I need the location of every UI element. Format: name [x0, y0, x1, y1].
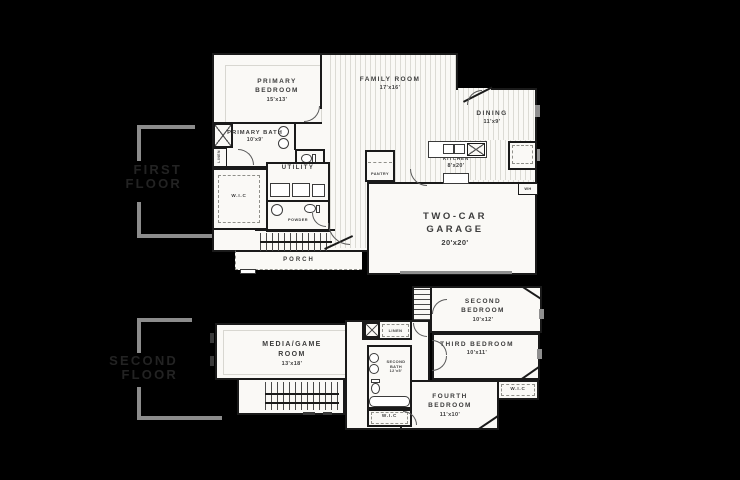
family-room-name: FAMILY ROOM: [358, 75, 422, 84]
pantry-text: PANTRY: [365, 171, 395, 176]
second-bedroom-name: SECOND BEDROOM: [446, 297, 520, 316]
wic-left-label: W.I.C: [367, 413, 412, 419]
powder-text: POWDER: [266, 217, 330, 222]
range: [443, 173, 469, 184]
water-heater-text: WH: [518, 186, 538, 191]
second-floor-label: SECOND FLOOR: [76, 354, 178, 383]
washer-dryer: [292, 183, 310, 197]
sink: [369, 364, 379, 374]
bathtub: [369, 396, 410, 407]
kitchen-dim: 8'x20': [426, 162, 486, 170]
sink: [369, 353, 379, 363]
dining-label: DINING 11'x9': [462, 109, 522, 127]
closet-dashed: [368, 162, 392, 163]
primary-bath-dim: 10'x9': [227, 137, 283, 145]
water-heater-label: WH: [518, 186, 538, 191]
window-mark: [323, 412, 332, 415]
powder-label: POWDER: [266, 217, 330, 222]
wic-right-text: W.I.C: [497, 386, 539, 392]
wall: [294, 122, 296, 150]
fourth-bedroom-label: FOURTH BEDROOM 11'x10': [413, 392, 487, 419]
third-bedroom-dim: 10'x11': [440, 349, 514, 357]
second-bath-name: SECOND BATH: [382, 359, 410, 369]
window-mark: [210, 333, 214, 343]
toilet-tank: [316, 205, 320, 213]
kitchen-label: KITCHEN 8'x20': [426, 156, 486, 171]
toilet: [304, 204, 316, 213]
window-mark: [210, 356, 214, 366]
third-bedroom-label: THIRD BEDROOM 10'x11': [440, 340, 514, 358]
fourth-bedroom-dim: 11'x10': [413, 411, 487, 419]
closet-dashed: [512, 145, 533, 164]
stairs: [414, 288, 430, 320]
wic-label: W.I.C: [216, 193, 262, 199]
window-mark: [535, 105, 540, 117]
wall: [456, 53, 458, 90]
linen-label: LINEN: [382, 328, 409, 333]
shower: [364, 322, 380, 338]
garage-dim: 20'x20': [403, 237, 507, 248]
toilet: [371, 383, 380, 394]
media-game-label: MEDIA/GAME ROOM 13'x18': [247, 340, 337, 369]
primary-bath-label: PRIMARY BATH 10'x9': [227, 129, 283, 145]
family-room-dim: 17'x16': [358, 84, 422, 92]
stair-rail: [260, 241, 332, 243]
second-floor-label-line2: FLOOR: [76, 368, 178, 382]
porch-step: [240, 269, 256, 274]
utility-text: UTILITY: [266, 164, 330, 173]
garage-name: TWO-CAR GARAGE: [403, 211, 507, 237]
stair-rail: [265, 393, 339, 395]
wic-right-label: W.I.C: [497, 386, 539, 392]
linen-text: LINEN: [382, 328, 409, 333]
pantry-closet: [365, 150, 395, 182]
porch-text: PORCH: [268, 256, 330, 265]
fourth-bedroom-name: FOURTH BEDROOM: [413, 392, 487, 411]
wall: [320, 53, 322, 109]
floorplan-image: FIRST FLOOR SECOND FLOOR WH: [0, 0, 740, 480]
second-bath-label: SECOND BATH 12'x5': [382, 359, 410, 375]
washer-dryer: [270, 183, 290, 197]
second-floor-bracket-top: [137, 318, 192, 353]
first-floor-bracket-top: [137, 125, 195, 161]
dining-dim: 11'x9': [462, 118, 522, 126]
utility-label: UTILITY: [266, 164, 330, 173]
second-floor-plan: LINEN W.I.C SECOND BATH 12'x5': [205, 283, 550, 460]
dining-name: DINING: [462, 109, 522, 118]
window-mark: [303, 412, 315, 415]
stair-rail: [265, 402, 339, 404]
first-floor-label: FIRST FLOOR: [80, 163, 182, 192]
wic-left-text: W.I.C: [367, 413, 412, 419]
wall: [255, 229, 335, 231]
sink: [271, 204, 283, 216]
garage-label: TWO-CAR GARAGE 20'x20': [403, 211, 507, 248]
utility-sink: [312, 184, 325, 197]
wic-text: W.I.C: [216, 193, 262, 199]
island-sink: [454, 144, 465, 154]
third-bedroom-name: THIRD BEDROOM: [440, 340, 514, 349]
window-mark: [537, 349, 542, 359]
primary-bedroom-name: PRIMARY BEDROOM: [240, 77, 314, 96]
pantry-label: PANTRY: [365, 171, 395, 176]
second-floor-label-line1: SECOND: [76, 354, 178, 368]
garage-door: [400, 271, 512, 274]
first-floor-plan: WH LINEN W.I.C UTILITY: [210, 45, 544, 279]
primary-bath-name: PRIMARY BATH: [227, 129, 283, 137]
primary-bedroom-dim: 15'x13': [240, 96, 314, 104]
stairs: [265, 382, 339, 410]
first-floor-label-line1: FIRST: [80, 163, 182, 177]
family-room-label: FAMILY ROOM 17'x16': [358, 75, 422, 93]
second-bath-dim: 12'x5': [382, 369, 410, 375]
first-floor-label-line2: FLOOR: [80, 177, 182, 191]
porch-label: PORCH: [268, 256, 330, 265]
island-sink: [443, 144, 454, 154]
primary-bedroom-label: PRIMARY BEDROOM 15'x13': [240, 77, 314, 104]
linen-label: LINEN: [217, 150, 221, 163]
island-hatch: [467, 143, 485, 156]
window-mark: [539, 309, 544, 319]
second-bedroom-label: SECOND BEDROOM 10'x12': [446, 297, 520, 324]
wall: [491, 88, 537, 90]
media-game-name: MEDIA/GAME ROOM: [247, 340, 337, 360]
media-game-dim: 13'x18': [247, 360, 337, 368]
second-bedroom-dim: 10'x12': [446, 316, 520, 324]
